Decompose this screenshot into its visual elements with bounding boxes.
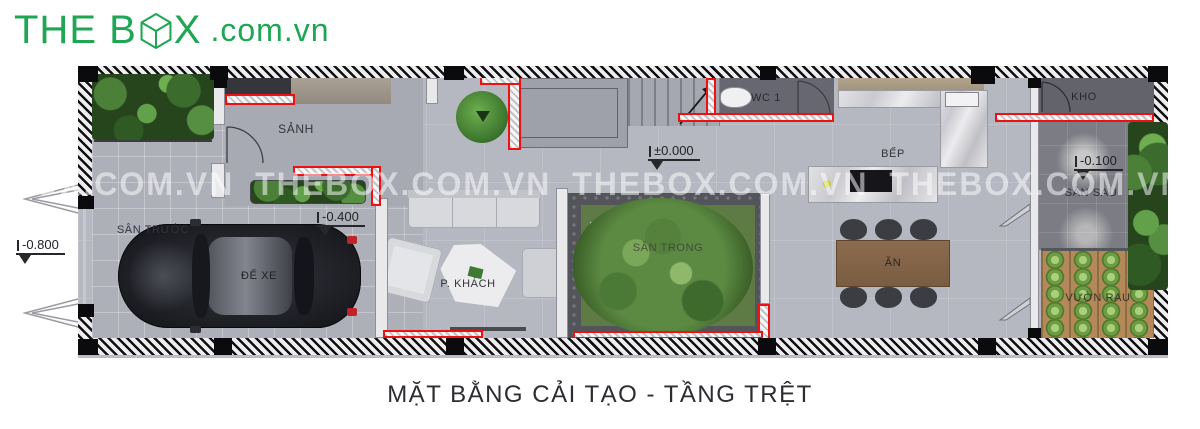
tree-center (476, 111, 490, 122)
column (210, 66, 228, 80)
backyard-plants (1128, 122, 1168, 290)
column (78, 304, 94, 317)
elevation-marker-garage: -0.400 (316, 208, 365, 236)
column (444, 66, 464, 80)
label-bep: BẾP (881, 148, 905, 160)
driveway-gate-line (83, 204, 86, 306)
wall-top (78, 66, 1168, 78)
sofa-back (408, 190, 540, 198)
front-gate-swing (22, 296, 80, 336)
armchair-seat (385, 246, 433, 294)
cooktop (850, 170, 892, 192)
entry-door-arc (225, 125, 265, 165)
red-wall-sanh-top (225, 94, 295, 105)
elevation-triangle (1077, 171, 1089, 180)
label-p-khach: P. KHÁCH (440, 278, 495, 290)
elevation-marker-backyard: -0.100 (1074, 152, 1123, 180)
logo-domain: .com.vn (210, 12, 329, 49)
toilet (721, 88, 751, 107)
logo-text-x: X (174, 8, 202, 53)
stairs-landing-outline (520, 88, 618, 138)
wall-left-upper (78, 66, 92, 204)
planter-edge (94, 140, 212, 142)
column (78, 339, 98, 355)
front-yard-plants (92, 74, 214, 140)
car-mirror (190, 219, 201, 226)
elevation-tick (17, 240, 19, 251)
column (978, 338, 996, 355)
dining-chair (840, 287, 867, 308)
sofa-cushion-divider (496, 198, 497, 228)
island-decor-dish (823, 180, 831, 188)
box-cube-icon (139, 10, 173, 52)
courtyard-tree-canopy (573, 198, 753, 335)
elevation-value: -0.400 (322, 209, 359, 224)
elevation-value: ±0.000 (654, 143, 694, 158)
coffee-table (434, 236, 521, 314)
logo: THE B X .com.vn (14, 8, 330, 53)
column (78, 66, 98, 82)
dining-chair (875, 219, 902, 240)
car-taillight (347, 236, 357, 244)
floor-plan: SÂN TRƯỚC ĐỂ XE SẢNH WC 1 KHO BẾP SÂN SA… (78, 66, 1168, 358)
dining-chair (910, 219, 937, 240)
elevation-tick (1075, 156, 1077, 167)
elevation-marker-front: -0.800 (16, 236, 65, 264)
wc-door-arc (796, 79, 832, 117)
label-de-xe: ĐỂ XE (241, 270, 277, 282)
courtyard-left-wall (556, 188, 568, 338)
car-windshield (192, 234, 210, 318)
red-wall-sanh-bottom-h (293, 166, 381, 176)
label-wc1: WC 1 (751, 92, 781, 104)
car-hood-highlight (130, 236, 196, 316)
elevation-triangle (651, 161, 663, 170)
sanh-wood-cabinet (291, 78, 391, 104)
label-san-truoc: SÂN TRƯỚC (117, 224, 189, 236)
red-wall-stairs-left (508, 74, 521, 150)
column (758, 338, 776, 355)
column (1148, 66, 1168, 82)
elevation-value: -0.100 (1080, 153, 1117, 168)
dining-chair (840, 219, 867, 240)
courtyard-right-wall (760, 193, 770, 304)
kitchen-upper-cabinet (838, 76, 984, 90)
wall-shelf (998, 202, 1032, 228)
logo-text-prefix: THE B (14, 8, 137, 53)
car-rear-window (294, 237, 314, 315)
label-san-sau: SÂN SAU (1065, 187, 1118, 199)
column (446, 338, 464, 355)
column (971, 66, 995, 84)
sofa-cushion-divider (452, 198, 453, 228)
column (760, 66, 776, 80)
elevation-tick (317, 212, 319, 223)
entry-wall-lower (211, 163, 225, 198)
round-tree (456, 91, 508, 143)
elevation-marker-ground: ±0.000 (648, 142, 700, 170)
elevation-triangle (19, 255, 31, 264)
column (78, 196, 94, 209)
wall-stub (426, 78, 438, 104)
car (118, 224, 361, 328)
label-vuon-rau: VƯỜN RAU (1065, 292, 1130, 304)
sanh-planter (251, 181, 365, 203)
wall-bottom (78, 338, 1168, 355)
sofa-three-seat (408, 190, 540, 228)
column (214, 338, 232, 355)
kho-door-arc (1040, 80, 1072, 114)
elevation-triangle (319, 227, 331, 236)
glass-facade-wall (375, 198, 388, 338)
elevation-tick (649, 146, 651, 157)
kitchen-sink (946, 93, 978, 106)
label-san-trong: SÂN TRONG (633, 242, 704, 254)
red-wall-sanh-bottom-v (371, 166, 381, 206)
plan-title: MẶT BẰNG CẢI TẠO - TẦNG TRỆT (0, 381, 1200, 409)
divider-cap (1028, 328, 1041, 338)
front-gate-swing (22, 182, 80, 222)
floor-plan-page: THE B X .com.vn (0, 0, 1200, 429)
label-kho: KHO (1071, 91, 1097, 103)
dining-chair (875, 287, 902, 308)
red-wall-wc-bottom (678, 113, 834, 122)
red-wall-kho-bottom (995, 113, 1154, 122)
stairs-landing (510, 78, 628, 148)
elevation-value: -0.800 (22, 237, 59, 252)
wall-shelf (998, 296, 1032, 322)
red-wall-living-bottom (383, 330, 483, 338)
car-mirror (190, 326, 201, 333)
label-an: ĂN (885, 257, 901, 269)
dining-chair (910, 287, 937, 308)
label-sanh: SẢNH (278, 122, 314, 136)
column (1148, 339, 1168, 355)
car-taillight (347, 308, 357, 316)
